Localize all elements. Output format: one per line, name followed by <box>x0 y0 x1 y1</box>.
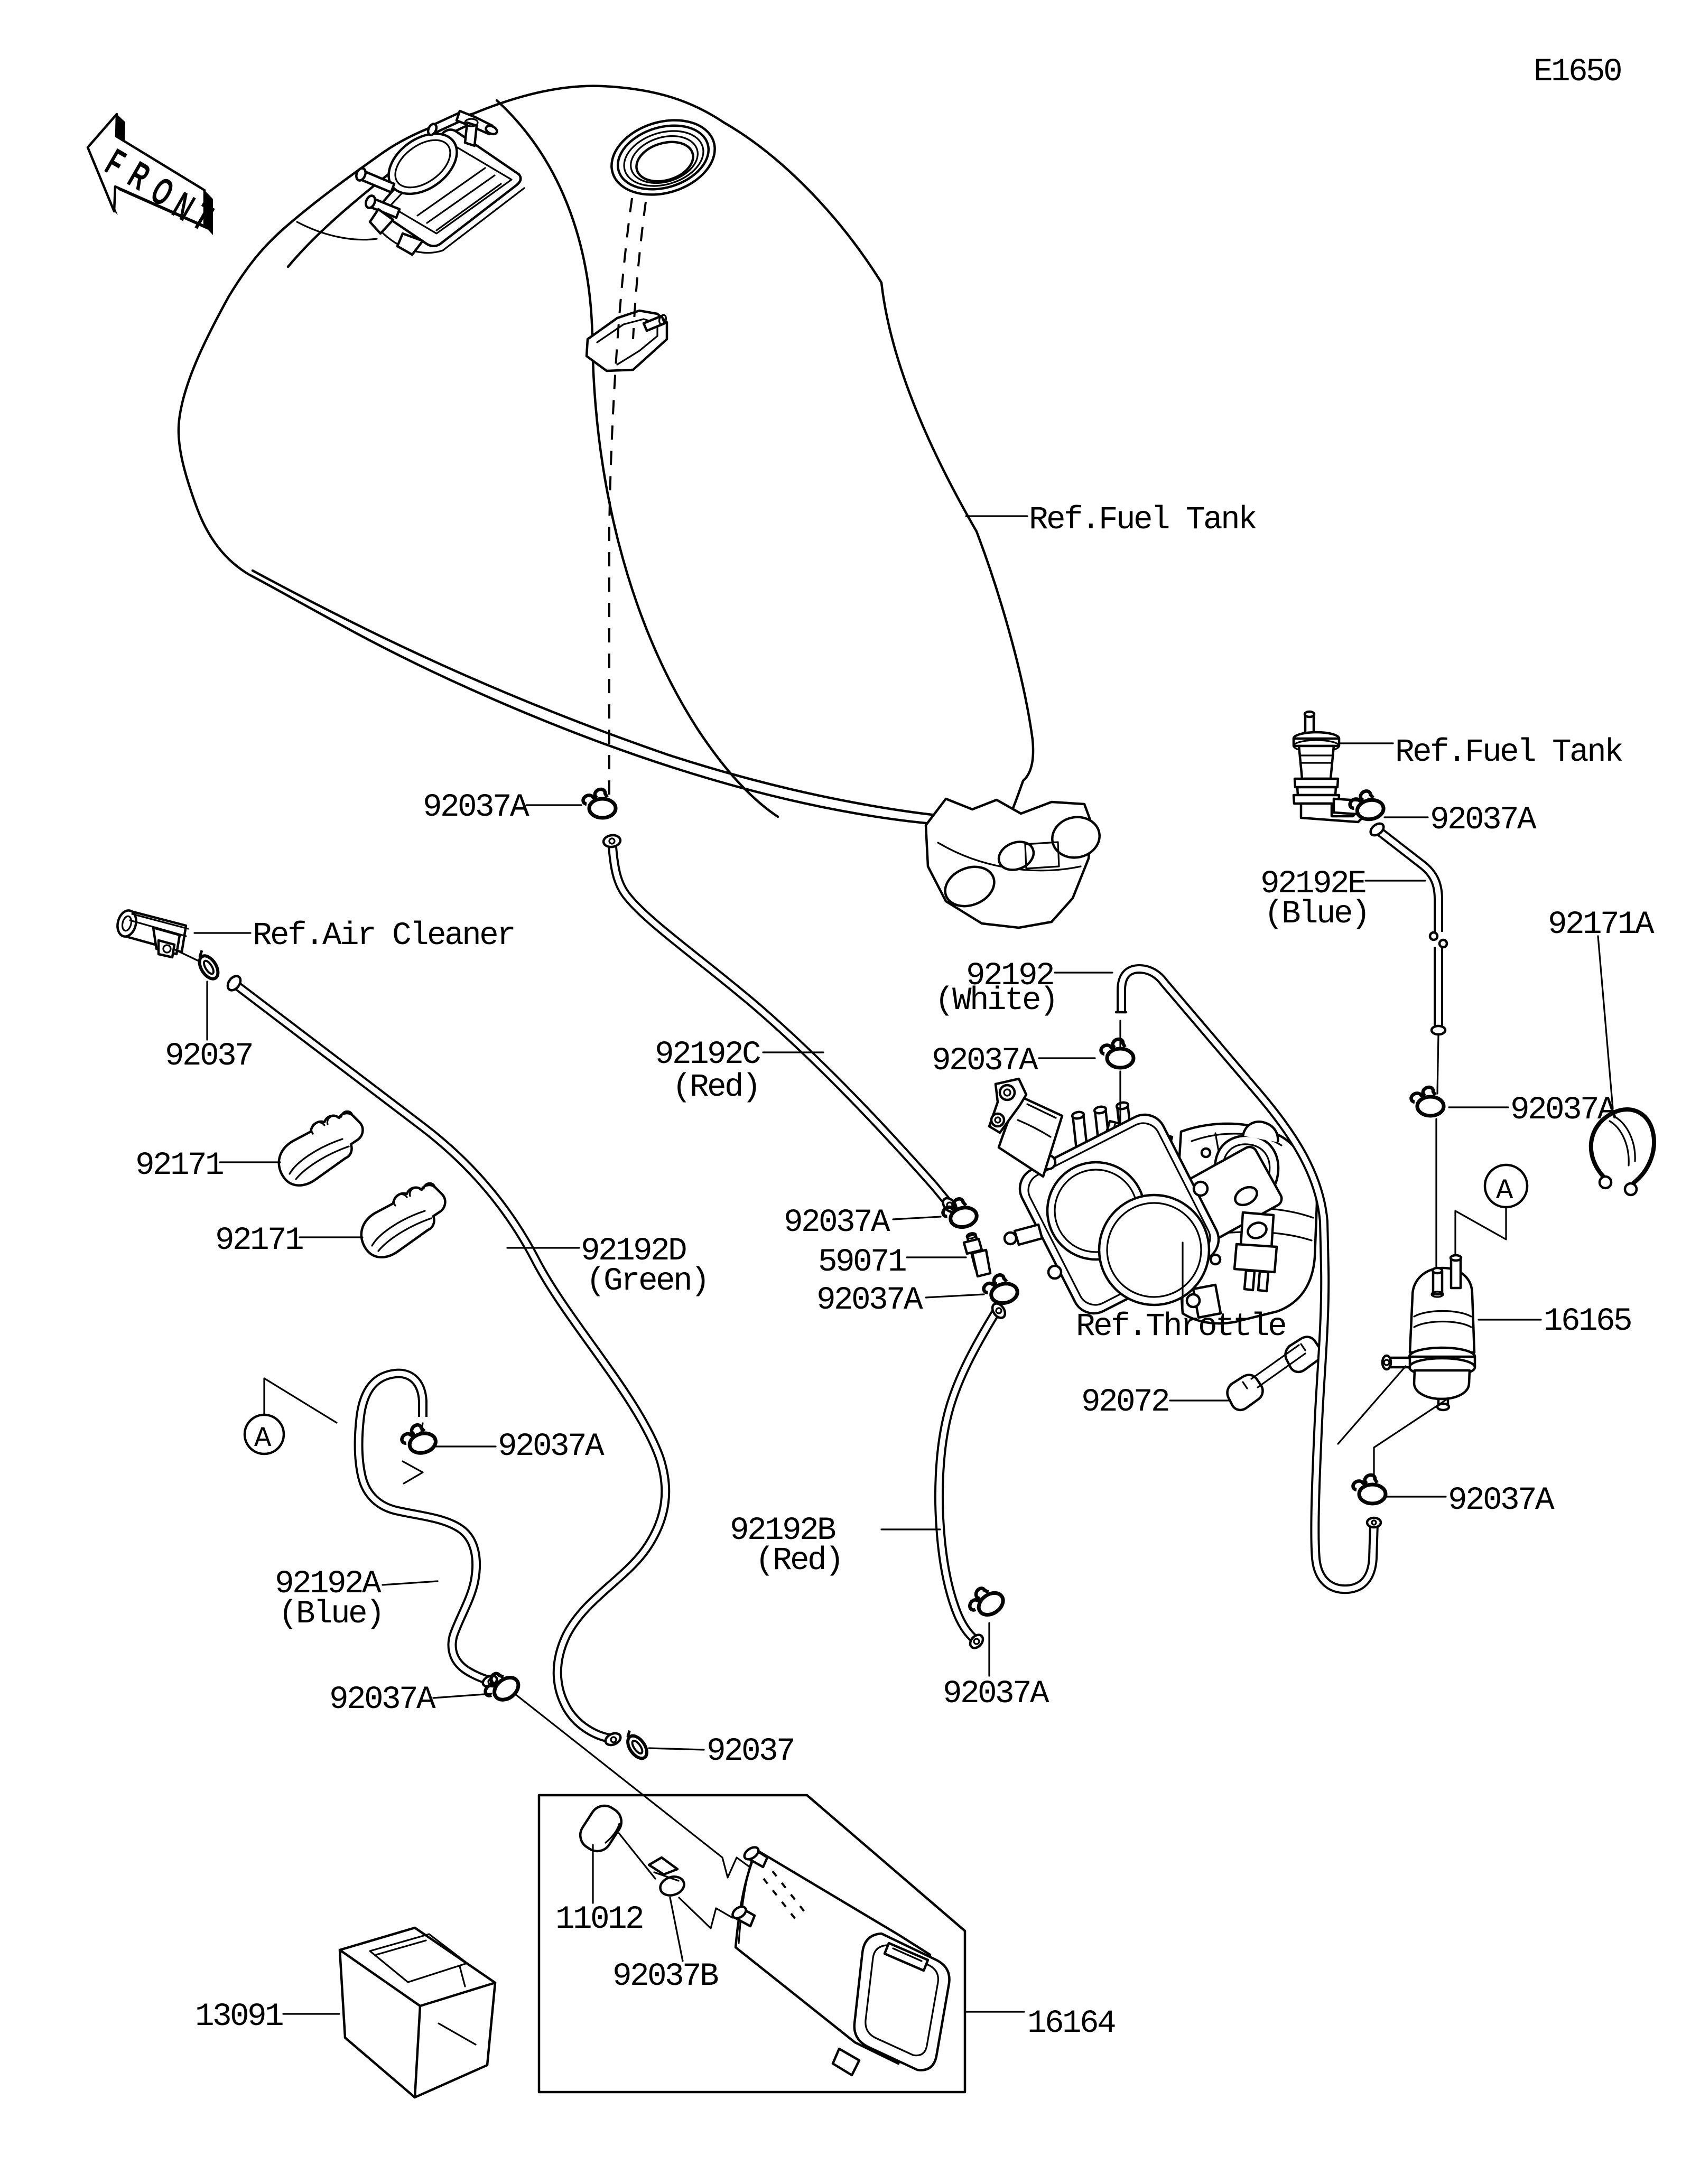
svg-text:(Red): (Red) <box>755 1543 842 1579</box>
svg-text:E1650: E1650 <box>1534 54 1621 90</box>
svg-text:92192C: 92192C <box>655 1037 760 1073</box>
svg-text:16165: 16165 <box>1544 1303 1631 1340</box>
svg-text:92171: 92171 <box>135 1147 223 1184</box>
svg-text:A: A <box>254 1423 272 1455</box>
svg-text:92037A: 92037A <box>329 1682 436 1718</box>
svg-text:(Green): (Green) <box>586 1263 708 1300</box>
svg-text:(Blue): (Blue) <box>278 1596 383 1632</box>
svg-text:92072: 92072 <box>1081 1384 1168 1421</box>
svg-text:92037B: 92037B <box>612 1958 718 1995</box>
svg-text:92037A: 92037A <box>784 1205 890 1241</box>
svg-text:(Blue): (Blue) <box>1264 896 1369 932</box>
svg-text:Ref.Fuel Tank: Ref.Fuel Tank <box>1395 734 1622 771</box>
svg-text:(Red): (Red) <box>672 1069 759 1106</box>
svg-text:A: A <box>1496 1175 1513 1207</box>
svg-text:92037A: 92037A <box>423 789 529 826</box>
svg-text:92037A: 92037A <box>816 1282 923 1319</box>
svg-text:92037A: 92037A <box>1510 1092 1617 1128</box>
svg-text:11012: 11012 <box>555 1901 643 1938</box>
svg-text:Ref.Fuel Tank: Ref.Fuel Tank <box>1029 502 1256 538</box>
svg-text:92037A: 92037A <box>932 1043 1038 1079</box>
svg-text:92037: 92037 <box>165 1038 252 1075</box>
svg-text:92037A: 92037A <box>1448 1482 1555 1519</box>
svg-text:13091: 13091 <box>195 1999 283 2035</box>
svg-text:16164: 16164 <box>1027 2005 1115 2042</box>
svg-text:59071: 59071 <box>818 1244 906 1281</box>
svg-text:92037A: 92037A <box>943 1676 1049 1712</box>
svg-text:92171: 92171 <box>215 1222 303 1259</box>
svg-text:Ref.Throttle: Ref.Throttle <box>1076 1309 1285 1345</box>
svg-text:Ref.Air Cleaner: Ref.Air Cleaner <box>253 918 514 954</box>
svg-text:92171A: 92171A <box>1548 907 1655 943</box>
svg-text:92037A: 92037A <box>498 1429 605 1465</box>
svg-text:92037A: 92037A <box>1430 802 1537 838</box>
svg-text:(White): (White) <box>935 983 1057 1019</box>
svg-text:92037: 92037 <box>707 1733 794 1770</box>
